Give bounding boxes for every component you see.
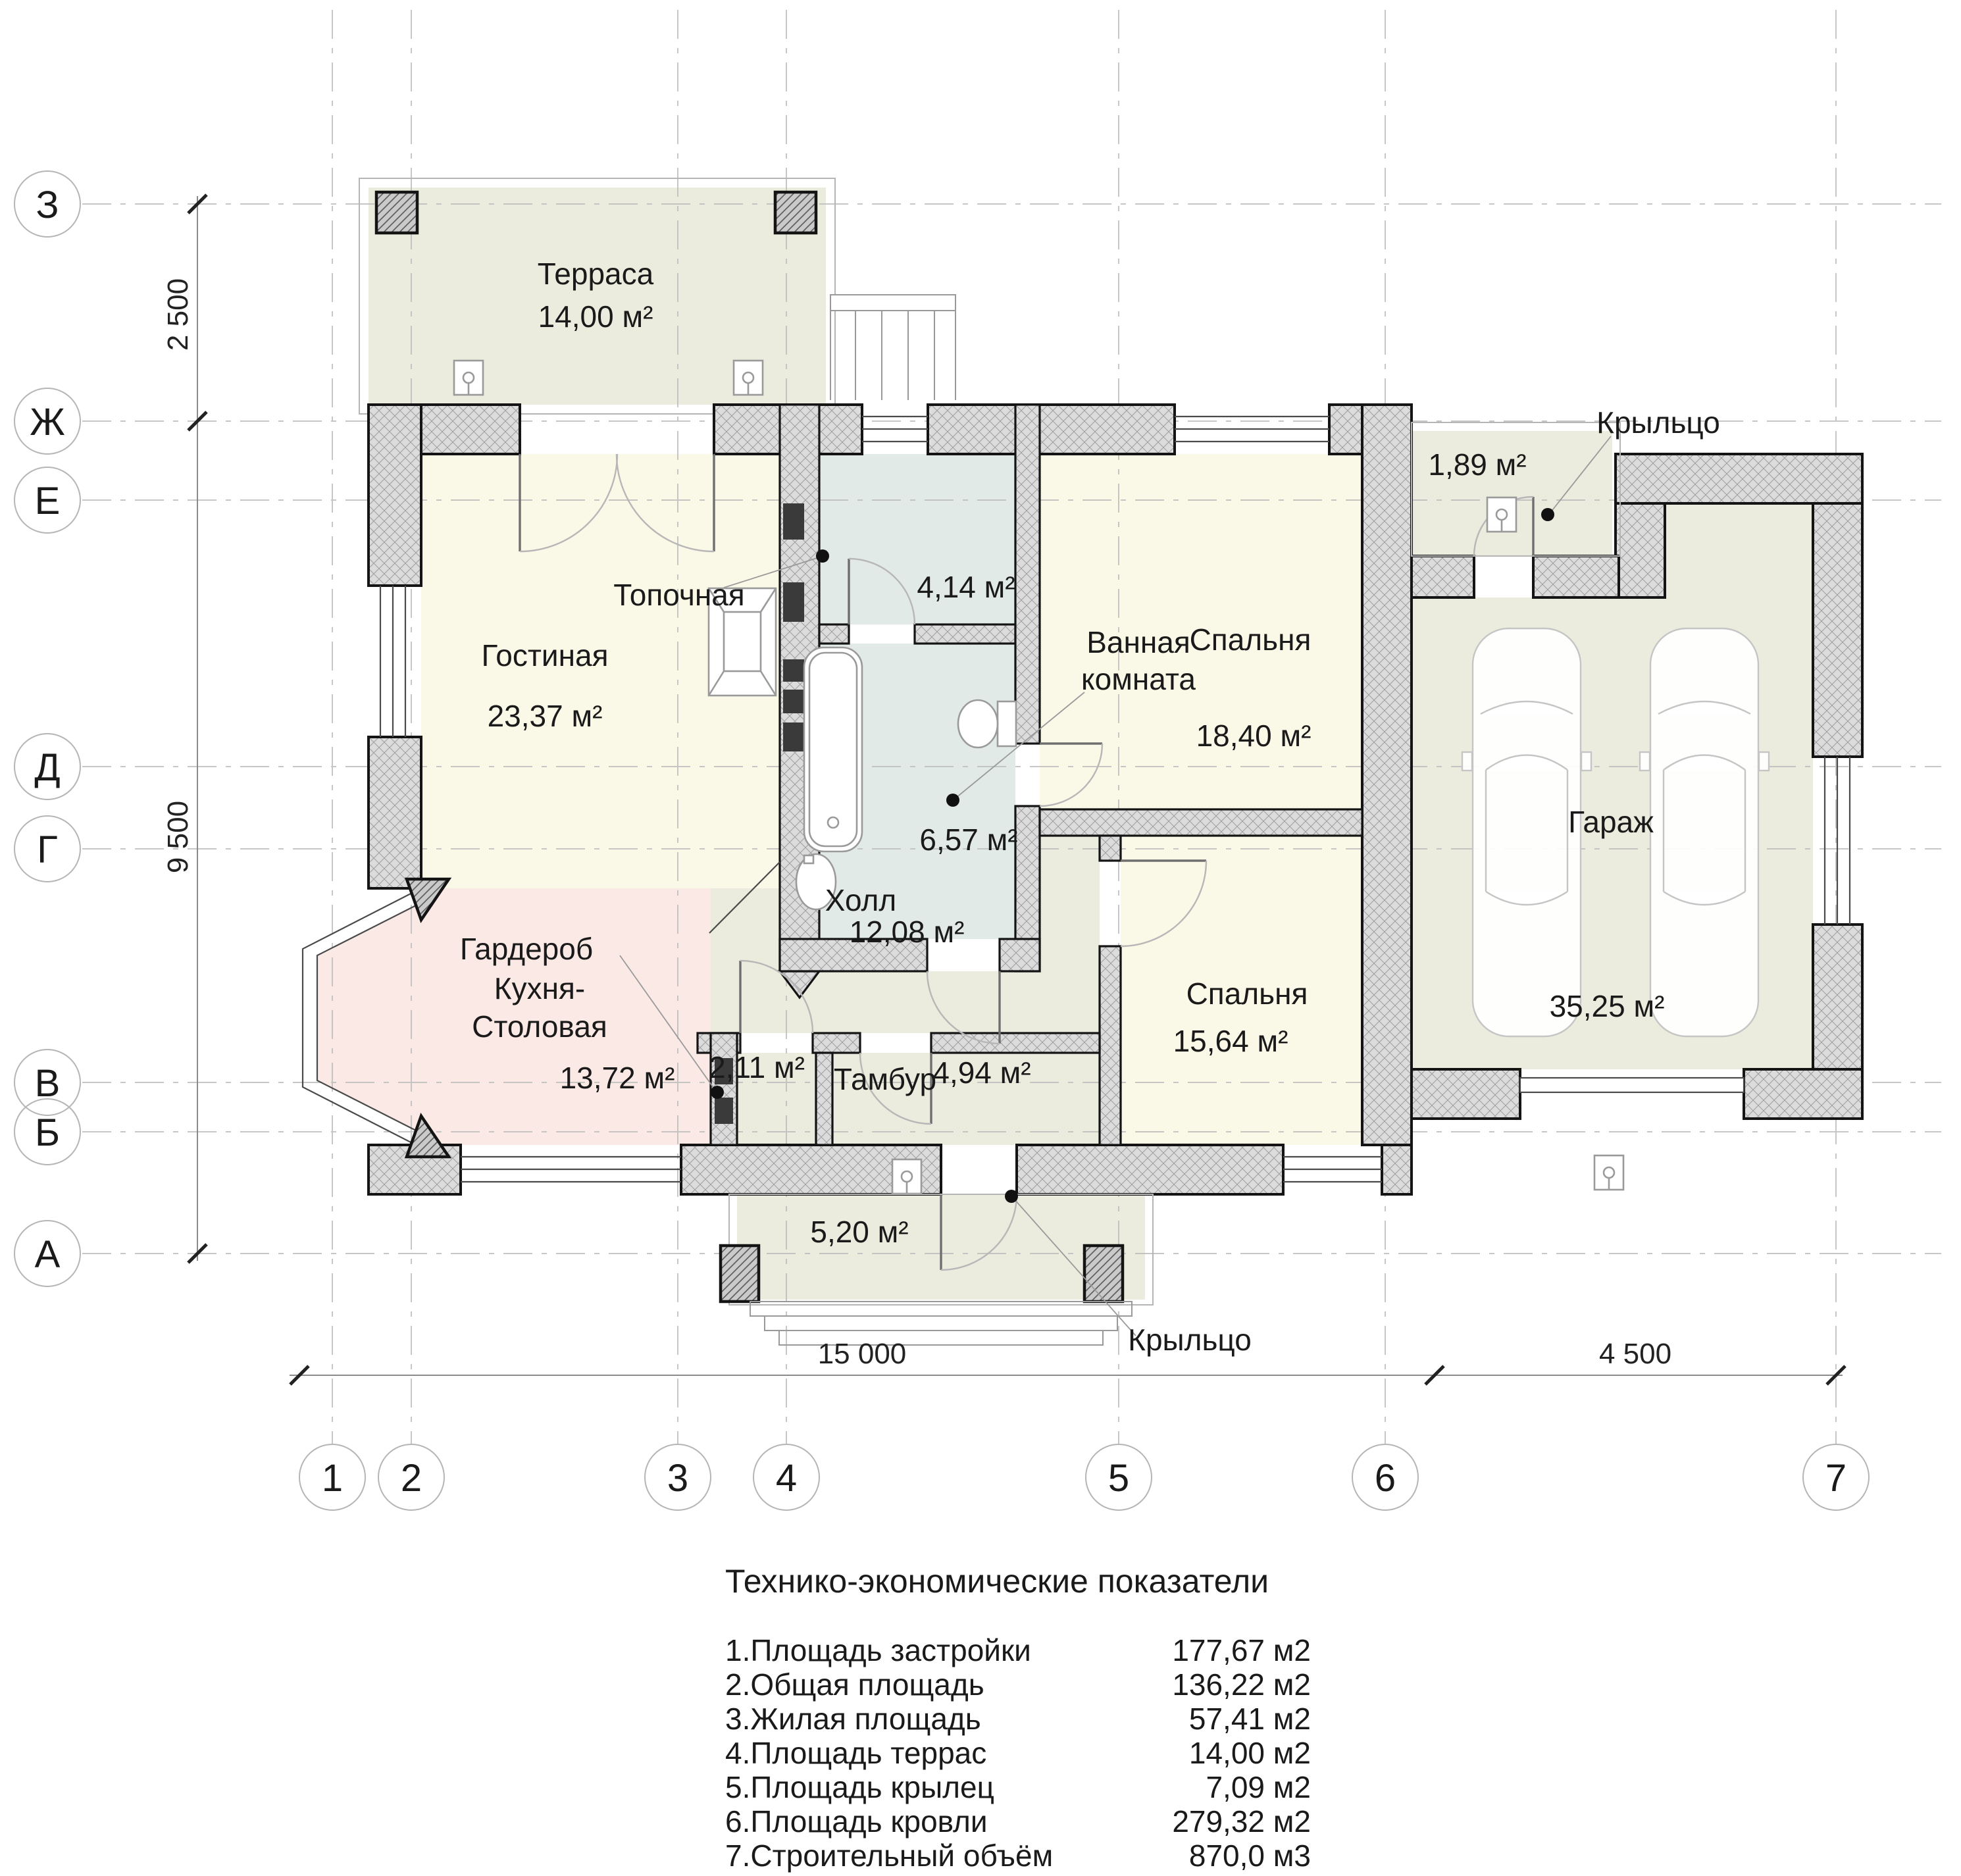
porch-post	[1084, 1246, 1123, 1302]
table-row-label: 2.Общая площадь	[725, 1667, 984, 1702]
wardrobe-name: Гардероб	[460, 932, 593, 966]
bathroom-area: 6,57 м²	[919, 823, 1017, 857]
table-title: Технико-экономические показатели	[725, 1563, 1269, 1600]
terrace-name: Терраса	[538, 257, 654, 291]
window-bedroom-bottom	[1283, 1157, 1382, 1182]
dim-bottom-garage: 4 500	[1599, 1338, 1671, 1370]
garage-name: Гараж	[1568, 805, 1654, 839]
axis-col-label: 3	[667, 1457, 688, 1500]
bathroom-name-2: комната	[1081, 662, 1196, 696]
table-row-label: 3.Жилая площадь	[725, 1702, 981, 1736]
table-row-label: 4.Площадь террас	[725, 1736, 986, 1770]
exterior-stair	[830, 295, 955, 400]
dim-left-main: 9 500	[162, 801, 194, 873]
garage-area: 35,25 м²	[1550, 989, 1665, 1023]
axis-row-label: Е	[35, 480, 61, 522]
porch-steps	[750, 1302, 1132, 1345]
table-row-value: 177,67 м2	[1172, 1633, 1311, 1667]
table-row-value: 57,41 м2	[1189, 1702, 1311, 1736]
window-garage-right	[1825, 757, 1850, 925]
table-row-value: 7,09 м2	[1206, 1770, 1311, 1804]
axis-col-label: 4	[776, 1457, 797, 1500]
floor-plan-drawing: Терраса 14,00 м² Гостиная 23,37 м² Топоч…	[0, 0, 1961, 1876]
boiler-name: Топочная	[613, 578, 744, 612]
hall-name: Холл	[825, 883, 896, 917]
floor-plan-page: Терраса 14,00 м² Гостиная 23,37 м² Топоч…	[0, 0, 1961, 1876]
table-row-label: 5.Площадь крылец	[725, 1770, 994, 1804]
axis-bubbles-bottom: 1 2 3 4 5 6 7	[299, 1444, 1869, 1510]
summary-table: Технико-экономические показатели 1.Площа…	[725, 1563, 1311, 1873]
terrace-area: 14,00 м²	[538, 299, 653, 334]
porch-front-name: Крыльцо	[1128, 1323, 1252, 1357]
porch-post	[721, 1246, 759, 1302]
terrace-post	[376, 192, 417, 233]
table-row-label: 6.Площадь кровли	[725, 1804, 988, 1838]
axis-col-label: 7	[1825, 1457, 1846, 1500]
porch-front-area: 5,20 м²	[810, 1215, 908, 1249]
axis-col-label: 5	[1108, 1457, 1129, 1500]
table-row-value: 279,32 м2	[1172, 1804, 1311, 1838]
axis-row-label: Д	[34, 746, 60, 789]
window-bedroom-top	[1175, 417, 1329, 442]
table-row-label: 7.Строительный объём	[725, 1838, 1053, 1873]
axis-row-label: Ж	[30, 401, 65, 444]
bathtub-icon	[804, 647, 862, 851]
boiler-area: 4,14 м²	[917, 570, 1015, 604]
living-area: 23,37 м²	[488, 699, 603, 733]
kitchen-name-2: Столовая	[472, 1009, 607, 1044]
porch-back-name: Крыльцо	[1596, 405, 1720, 440]
axis-row-label: Б	[35, 1111, 60, 1154]
bedroom-top-name: Спальня	[1190, 622, 1312, 657]
vestibule-area: 4,94 м²	[932, 1055, 1031, 1090]
wardrobe-area: 2,11 м²	[709, 1050, 805, 1084]
bedroom-bottom-name: Спальня	[1186, 976, 1308, 1011]
axis-row-label: Г	[37, 828, 57, 871]
living-name: Гостиная	[481, 638, 608, 672]
table-row-label: 1.Площадь застройки	[725, 1633, 1031, 1667]
kitchen-area: 13,72 м²	[560, 1061, 675, 1095]
axis-col-label: 6	[1375, 1457, 1396, 1500]
porch-back-area: 1,89 м²	[1428, 447, 1526, 482]
axis-col-label: 2	[401, 1457, 422, 1500]
bathroom-name-1: Ванная	[1086, 625, 1190, 659]
dim-bottom-main: 15 000	[818, 1338, 907, 1370]
toilet-icon	[958, 700, 1016, 748]
bedroom-bottom-area: 15,64 м²	[1173, 1024, 1288, 1058]
dim-left-top: 2 500	[162, 278, 194, 351]
window-kitchen-bottom	[461, 1157, 681, 1182]
table-row-value: 14,00 м2	[1189, 1736, 1311, 1770]
table-row-value: 870,0 м3	[1189, 1838, 1311, 1873]
vestibule-name: Тамбур	[834, 1062, 936, 1096]
window-living-left	[380, 586, 405, 737]
table-row-value: 136,22 м2	[1172, 1667, 1311, 1702]
kitchen-name-1: Кухня-	[494, 971, 585, 1005]
axis-row-label: А	[35, 1233, 61, 1276]
bedroom-top-area: 18,40 м²	[1196, 719, 1312, 753]
window-top-1	[862, 417, 928, 442]
garage-gate	[1520, 1078, 1744, 1092]
axis-row-label: З	[36, 184, 59, 226]
axis-col-label: 1	[322, 1457, 343, 1500]
terrace-post	[775, 192, 816, 233]
axis-bubbles-left: З Ж Е Д Г В Б А	[14, 171, 80, 1286]
hall-area: 12,08 м²	[850, 915, 965, 949]
